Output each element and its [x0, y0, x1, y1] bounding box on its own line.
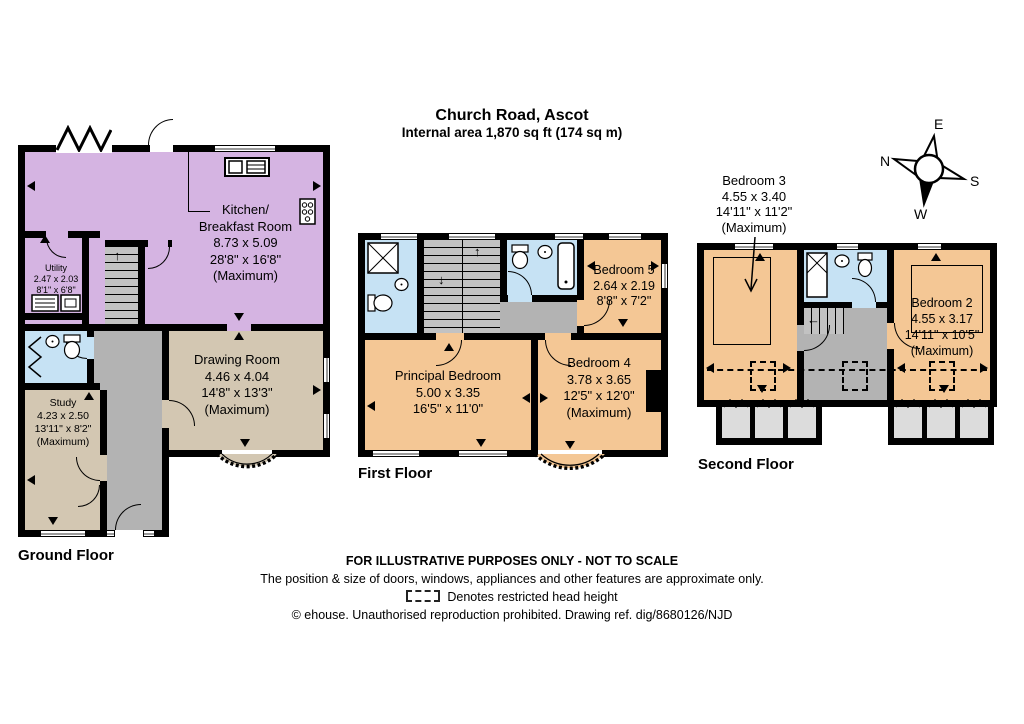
wall-segment: [323, 145, 330, 457]
room-dims-metric: 4.23 x 2.50: [27, 410, 99, 423]
wall-segment: [697, 243, 704, 407]
compass-north-label: N: [880, 153, 890, 169]
room-dims-metric: 5.00 x 3.35: [370, 385, 526, 402]
ground-floor-plan: ↑: [18, 145, 330, 537]
restricted-height-legend-icon: [406, 590, 440, 602]
second-floor-label: Second Floor: [698, 456, 794, 473]
pointer-icon: [783, 363, 791, 373]
room-dims-imperial: 14'8" x 13'3": [164, 385, 310, 402]
room-label-study: Study 4.23 x 2.50 13'11" x 8'2" (Maximum…: [27, 397, 99, 449]
wall-segment: [602, 450, 668, 457]
pointer-icon: [897, 363, 905, 373]
zigzag-open-wall-icon: [56, 125, 112, 152]
room-label-kitchen: Kitchen/ Breakfast Room 8.73 x 5.09 28'8…: [168, 202, 323, 285]
pointer-icon: [48, 517, 58, 525]
footer-legend-text: Denotes restricted head height: [447, 590, 617, 604]
stairs-ground: [105, 247, 138, 324]
room-dims-metric: 8.73 x 5.09: [168, 235, 323, 252]
room-label-bedroom5: Bedroom 5 2.64 x 2.19 8'8" x 7'2": [586, 263, 662, 310]
sink-icon: [394, 277, 409, 292]
bay-window-icon: [216, 453, 278, 480]
room-name: Drawing Room: [164, 352, 310, 369]
room-dims-metric: 4.55 x 3.40: [696, 189, 812, 205]
wall-segment: [18, 145, 25, 537]
pointer-icon: [565, 441, 575, 449]
door-opening: [887, 323, 894, 349]
stairs-down-arrow: ↓: [438, 273, 445, 286]
landing-first: [500, 302, 577, 333]
window: [458, 450, 508, 457]
room-name: Study: [27, 397, 99, 410]
shower-icon: [806, 252, 828, 298]
pointer-icon: [234, 313, 244, 321]
pointer-icon: [931, 253, 941, 261]
room-name: Utility: [27, 263, 85, 274]
window: [323, 357, 330, 383]
second-floor-plan: ←: [697, 243, 997, 453]
window: [608, 233, 642, 240]
room-label-utility: Utility 2.47 x 2.03 8'1" x 6'8": [27, 263, 85, 296]
room-label-bedroom4: Bedroom 4 3.78 x 3.65 12'5" x 12'0" (Max…: [540, 355, 658, 421]
window: [106, 530, 115, 537]
pointer-icon: [618, 319, 628, 327]
wall-segment: [365, 333, 661, 340]
toilet-icon: [510, 244, 530, 270]
stairs-up-arrow: ↑: [114, 249, 121, 262]
door-opening: [797, 325, 804, 351]
room-name: Bedroom 5: [586, 263, 662, 279]
wall-segment: [25, 383, 100, 390]
wall-segment: [417, 240, 424, 333]
room-dims-imperial: 14'11" x 10'5": [894, 327, 990, 343]
stairs-up-arrow: ↑: [474, 245, 481, 258]
wall-segment: [138, 240, 145, 324]
room-label-principal-bedroom: Principal Bedroom 5.00 x 3.35 16'5" x 11…: [370, 368, 526, 418]
toilet-icon: [62, 334, 82, 360]
door-opening: [545, 333, 571, 340]
door-opening: [87, 337, 94, 359]
pointer-icon: [40, 235, 50, 243]
door-opening: [852, 302, 876, 308]
pointer-icon: [240, 439, 250, 447]
window: [323, 413, 330, 439]
room-dims-imperial: 13'11" x 8'2": [27, 423, 99, 436]
restricted-height-box: [842, 361, 868, 391]
toilet-icon: [367, 293, 393, 313]
bathtub-icon: [557, 242, 575, 290]
dormer-bay: [894, 407, 922, 438]
room-dims-imperial: 14'11" x 11'2": [696, 204, 812, 220]
room-dims-imperial: 12'5" x 12'0": [540, 388, 658, 405]
room-dims-note: (Maximum): [168, 268, 323, 285]
door-opening: [436, 333, 464, 340]
window: [661, 263, 668, 289]
wall-segment: [25, 324, 323, 331]
stairs-divider: [462, 240, 463, 333]
pointer-icon: [476, 439, 486, 447]
compass-west-label: W: [914, 206, 928, 222]
door-opening: [508, 295, 532, 302]
pointer-icon: [757, 385, 767, 393]
wall-segment: [169, 450, 222, 457]
room-label-bedroom2: Bedroom 2 4.55 x 3.17 14'11" x 10'5" (Ma…: [894, 295, 990, 359]
pointer-icon: [444, 343, 454, 351]
window: [836, 243, 859, 250]
dormer-bay: [927, 407, 955, 438]
pointer-icon: [706, 363, 714, 373]
room-dims-note: (Maximum): [540, 405, 658, 422]
sink-icon: [45, 334, 60, 349]
open-plan-opening: [227, 324, 251, 331]
window: [214, 145, 276, 152]
dormer-bay: [722, 407, 750, 438]
dormer-bay: [788, 407, 816, 438]
room-dims-imperial: 28'8" x 16'8": [168, 252, 323, 269]
dormer-window-icon: [756, 399, 782, 408]
kitchen-sink-icon: [224, 157, 270, 177]
window: [40, 530, 86, 537]
dormer-window-icon: [895, 399, 921, 408]
utility-appliances-icon: [31, 294, 81, 312]
shower-screen-icon: [27, 335, 43, 379]
room-name: Principal Bedroom: [370, 368, 526, 385]
dormer-bay: [960, 407, 988, 438]
dormer-bay: [755, 407, 783, 438]
wall-segment: [531, 340, 538, 450]
room-name: Bedroom 4: [540, 355, 658, 372]
wall-segment: [272, 450, 323, 457]
sink-icon: [537, 244, 553, 260]
room-dims-metric: 2.64 x 2.19: [586, 279, 662, 295]
room-dims-metric: 4.46 x 4.04: [164, 369, 310, 386]
room-dims-note: (Maximum): [894, 343, 990, 359]
compass-icon: E S W N: [872, 112, 992, 222]
room-dims-metric: 3.78 x 3.65: [540, 372, 658, 389]
compass-east-label: E: [934, 116, 943, 132]
compass-south-label: S: [970, 173, 979, 189]
door-opening: [577, 300, 584, 326]
pointer-icon: [27, 181, 35, 191]
dormer-window-icon: [961, 399, 987, 408]
footer-disclaimer: The position & size of doors, windows, a…: [0, 572, 1024, 586]
pointer-icon: [313, 385, 321, 395]
room-name: Bedroom 2: [894, 295, 990, 311]
pointer-icon: [939, 385, 949, 393]
toilet-icon: [856, 252, 874, 278]
pointer-icon: [313, 181, 321, 191]
window: [917, 243, 942, 250]
pointer-icon: [980, 363, 988, 373]
door-opening: [148, 240, 168, 247]
first-floor-label: First Floor: [358, 465, 432, 482]
callout-arrow-icon: [744, 237, 764, 299]
room-dims-metric: 2.47 x 2.03: [27, 274, 85, 285]
shower-icon: [367, 242, 399, 274]
window: [372, 450, 420, 457]
footer-disclaimer-bold: FOR ILLUSTRATIVE PURPOSES ONLY - NOT TO …: [0, 554, 1024, 568]
first-floor-plan: ↑ ↓: [358, 233, 668, 457]
room-dims-imperial: 16'5" x 11'0": [370, 401, 526, 418]
wall-segment: [358, 233, 365, 457]
front-door-opening: [115, 530, 143, 537]
room-name: Kitchen/: [168, 202, 323, 219]
pointer-icon: [27, 475, 35, 485]
room-dims-metric: 4.55 x 3.17: [894, 311, 990, 327]
footer-legend: Denotes restricted head height: [0, 590, 1024, 604]
window: [448, 233, 496, 240]
window: [143, 530, 155, 537]
wall-segment: [25, 313, 89, 320]
sink-icon: [834, 254, 850, 268]
dormer-window-icon: [928, 399, 954, 408]
floorplan-page: Church Road, Ascot Internal area 1,870 s…: [0, 0, 1024, 724]
pointer-icon: [234, 332, 244, 340]
room-label-drawing-room: Drawing Room 4.46 x 4.04 14'8" x 13'3" (…: [164, 352, 310, 418]
room-name: Bedroom 3: [696, 173, 812, 189]
room-dims-imperial: 8'8" x 7'2": [586, 294, 662, 310]
footer-copyright: © ehouse. Unauthorised reproduction proh…: [0, 608, 1024, 622]
room-dims-note: (Maximum): [696, 220, 812, 236]
dormer-window-icon: [723, 399, 749, 408]
wall-segment: [500, 240, 507, 302]
page-title: Church Road, Ascot: [0, 107, 1024, 125]
room-dims-note: (Maximum): [164, 402, 310, 419]
window: [554, 233, 584, 240]
door-opening: [150, 145, 173, 152]
dormer-window-icon: [789, 399, 815, 408]
bay-window-icon: [534, 453, 606, 481]
room-name: Breakfast Room: [168, 219, 323, 236]
room-label-bedroom3: Bedroom 3 4.55 x 3.40 14'11" x 11'2" (Ma…: [696, 173, 812, 235]
room-dims-imperial: 8'1" x 6'8": [27, 285, 85, 296]
room-dims-note: (Maximum): [27, 436, 99, 449]
wall-segment: [990, 243, 997, 407]
door-opening: [100, 455, 107, 481]
window: [380, 233, 418, 240]
